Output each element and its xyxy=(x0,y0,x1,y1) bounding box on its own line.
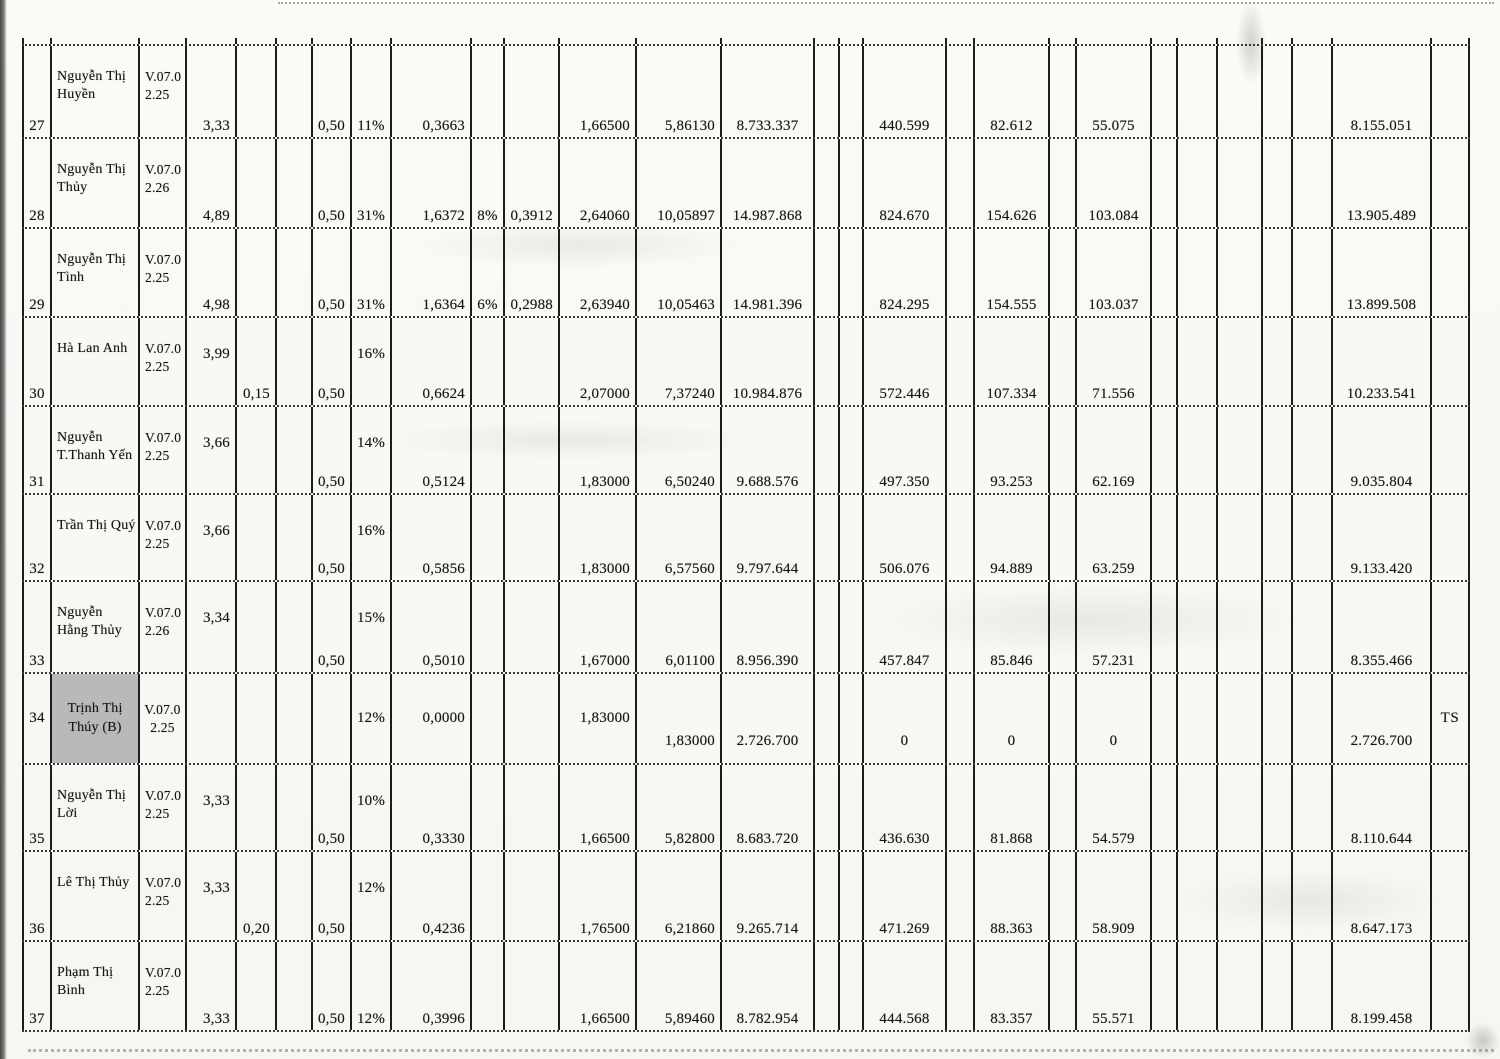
rank-code-cell-text: V.07.0 2.25 xyxy=(144,701,180,737)
empty-cell xyxy=(947,46,975,137)
empty-cell xyxy=(277,139,313,227)
deduction1-cell-text: 0 xyxy=(901,733,909,750)
base-amount-cell: 1,76500 xyxy=(560,852,637,940)
rank-code-cell: V.07.0 2.25 xyxy=(140,942,187,1030)
empty-cell xyxy=(1293,139,1333,227)
salary-coefficient-cell: 3,99 xyxy=(187,318,237,405)
grid-tick xyxy=(1050,38,1077,44)
deduction3-cell: 58.909 xyxy=(1077,852,1152,940)
total-coefficient-cell: 6,50240 xyxy=(637,407,722,493)
gross-salary-cell-text: 14.987.868 xyxy=(733,208,803,225)
salary-coefficient-cell: 3,66 xyxy=(187,407,237,493)
rank-code-cell: V.07.0 2.26 xyxy=(140,139,187,227)
amount2-cell xyxy=(505,942,560,1030)
salary-coefficient-cell: 4,89 xyxy=(187,139,237,227)
deduction2-cell-text: 107.334 xyxy=(986,386,1036,403)
grid-tick xyxy=(1263,38,1293,44)
seniority-amount-cell-text: 0,3996 xyxy=(423,1011,465,1028)
salary-coefficient-cell: 4,98 xyxy=(187,229,237,316)
grid-tick xyxy=(237,38,277,44)
gross-salary-cell: 2.726.700 xyxy=(722,674,815,763)
empty-cell xyxy=(1218,318,1263,405)
empty-cell xyxy=(815,407,840,493)
salary-coefficient-cell: 3,33 xyxy=(187,852,237,940)
empty-cell xyxy=(1293,46,1333,137)
grid-tick xyxy=(52,38,140,44)
employee-name-cell-text: Trịnh Thị Thúy (B) xyxy=(67,700,122,737)
empty-cell xyxy=(1152,582,1178,672)
base-amount-cell: 2,63940 xyxy=(560,229,637,316)
seniority-amount-cell-text: 0,5124 xyxy=(423,474,465,491)
deduction2-cell: 83.357 xyxy=(975,942,1050,1030)
gross-salary-cell: 8.782.954 xyxy=(722,942,815,1030)
empty-cell xyxy=(277,318,313,405)
seniority-percent-cell: 12% xyxy=(352,852,392,940)
net-salary-cell-text: 10.233.541 xyxy=(1347,386,1417,403)
employee-name-cell-text: Nguyễn Thị Lời xyxy=(57,787,126,824)
deduction3-cell: 63.259 xyxy=(1077,495,1152,580)
empty-cell xyxy=(1218,46,1263,137)
amount2-cell xyxy=(505,852,560,940)
empty-cell xyxy=(1050,318,1077,405)
total-coefficient-cell-text: 6,50240 xyxy=(665,474,715,491)
grid-tick xyxy=(1178,38,1218,44)
percent2-cell xyxy=(472,765,505,850)
row-number-cell-text: 34 xyxy=(29,710,44,727)
rank-code-cell-text: V.07.0 2.26 xyxy=(145,161,181,197)
percent2-cell xyxy=(472,942,505,1030)
total-coefficient-cell-text: 5,89460 xyxy=(665,1011,715,1028)
total-coefficient-cell-text: 10,05897 xyxy=(657,208,715,225)
net-salary-cell-text: 13.899.508 xyxy=(1347,297,1417,314)
empty-cell xyxy=(1178,495,1218,580)
employee-name-cell-text: Trần Thị Quý xyxy=(57,517,136,535)
percent2-cell xyxy=(472,46,505,137)
net-salary-cell-text: 8.647.173 xyxy=(1351,921,1413,938)
empty-cell xyxy=(277,674,313,763)
allowance-05-cell-text: 0,50 xyxy=(318,118,345,135)
seniority-percent-cell: 10% xyxy=(352,765,392,850)
percent2-cell xyxy=(472,318,505,405)
note-cell xyxy=(1432,407,1470,493)
gross-salary-cell-text: 9.265.714 xyxy=(737,921,799,938)
total-coefficient-cell: 5,86130 xyxy=(637,46,722,137)
empty-cell xyxy=(815,318,840,405)
allowance-extra-cell xyxy=(237,942,277,1030)
table-row: 35Nguyễn Thị LờiV.07.0 2.253,330,5010%0,… xyxy=(22,765,1470,852)
base-amount-cell: 1,67000 xyxy=(560,582,637,672)
deduction3-cell-text: 103.084 xyxy=(1088,208,1138,225)
seniority-amount-cell-text: 1,6364 xyxy=(423,297,465,314)
gross-salary-cell-text: 8.956.390 xyxy=(737,653,799,670)
empty-cell xyxy=(840,765,864,850)
empty-cell xyxy=(1178,46,1218,137)
empty-cell xyxy=(1152,942,1178,1030)
seniority-percent-cell: 15% xyxy=(352,582,392,672)
note-cell xyxy=(1432,139,1470,227)
percent2-cell xyxy=(472,674,505,763)
total-coefficient-cell: 5,82800 xyxy=(637,765,722,850)
salary-coefficient-cell: 3,33 xyxy=(187,765,237,850)
allowance-05-cell: 0,50 xyxy=(313,495,352,580)
scanned-payroll-sheet: 27Nguyễn Thị HuyềnV.07.0 2.253,330,5011%… xyxy=(0,0,1500,1059)
amount2-cell xyxy=(505,46,560,137)
total-coefficient-cell-text: 6,57560 xyxy=(665,561,715,578)
empty-cell xyxy=(947,139,975,227)
seniority-percent-cell: 11% xyxy=(352,46,392,137)
deduction1-cell-text: 471.269 xyxy=(879,921,929,938)
note-cell xyxy=(1432,46,1470,137)
rank-code-cell-text: V.07.0 2.25 xyxy=(145,787,181,823)
salary-coefficient-cell xyxy=(187,674,237,763)
seniority-percent-cell: 16% xyxy=(352,318,392,405)
total-coefficient-cell: 10,05897 xyxy=(637,139,722,227)
table-row: 31Nguyễn T.Thanh YếnV.07.0 2.253,660,501… xyxy=(22,407,1470,495)
net-salary-cell-text: 2.726.700 xyxy=(1351,733,1413,750)
allowance-05-cell: 0,50 xyxy=(313,229,352,316)
rank-code-cell: V.07.0 2.25 xyxy=(140,407,187,493)
table-row: 32Trần Thị QuýV.07.0 2.253,660,5016%0,58… xyxy=(22,495,1470,582)
deduction2-cell: 81.868 xyxy=(975,765,1050,850)
grid-tick xyxy=(1152,38,1178,44)
allowance-extra-cell: 0,15 xyxy=(237,318,277,405)
empty-cell xyxy=(947,674,975,763)
deduction2-cell-text: 81.868 xyxy=(990,831,1032,848)
allowance-05-cell: 0,50 xyxy=(313,582,352,672)
total-coefficient-cell: 6,21860 xyxy=(637,852,722,940)
empty-cell xyxy=(277,852,313,940)
empty-cell xyxy=(1218,852,1263,940)
rank-code-cell: V.07.0 2.25 xyxy=(140,318,187,405)
seniority-amount-cell: 0,4236 xyxy=(392,852,472,940)
empty-cell xyxy=(1050,852,1077,940)
gross-salary-cell-text: 2.726.700 xyxy=(737,733,799,750)
percent2-cell xyxy=(472,852,505,940)
empty-cell xyxy=(1218,407,1263,493)
salary-coefficient-cell-text: 3,33 xyxy=(203,793,230,810)
net-salary-cell-text: 9.035.804 xyxy=(1351,474,1413,491)
grid-tick xyxy=(840,38,864,44)
amount2-cell-text: 0,3912 xyxy=(511,208,553,225)
seniority-percent-cell: 12% xyxy=(352,674,392,763)
salary-coefficient-cell-text: 3,99 xyxy=(203,346,230,363)
seniority-percent-cell-text: 16% xyxy=(357,346,385,363)
percent2-cell xyxy=(472,582,505,672)
table-top-border-ticks xyxy=(22,38,1470,46)
total-coefficient-cell-text: 5,86130 xyxy=(665,118,715,135)
empty-cell xyxy=(1263,407,1293,493)
seniority-percent-cell: 31% xyxy=(352,139,392,227)
total-coefficient-cell: 5,89460 xyxy=(637,942,722,1030)
deduction1-cell: 572.446 xyxy=(864,318,947,405)
gross-salary-cell: 14.981.396 xyxy=(722,229,815,316)
empty-cell xyxy=(947,318,975,405)
allowance-05-cell-text: 0,50 xyxy=(318,386,345,403)
deduction2-cell-text: 83.357 xyxy=(990,1011,1032,1028)
allowance-extra-cell xyxy=(237,139,277,227)
deduction1-cell-text: 506.076 xyxy=(879,561,929,578)
salary-coefficient-cell: 3,66 xyxy=(187,495,237,580)
empty-cell xyxy=(947,942,975,1030)
allowance-extra-cell xyxy=(237,674,277,763)
empty-cell xyxy=(1293,407,1333,493)
empty-cell xyxy=(1152,407,1178,493)
employee-name-cell-text: Nguyễn Thị Huyền xyxy=(57,68,126,105)
rank-code-cell-text: V.07.0 2.25 xyxy=(145,517,181,553)
allowance-extra-cell-text: 0,15 xyxy=(243,386,270,403)
table-row: 34Trịnh Thị Thúy (B)V.07.0 2.2512%0,0000… xyxy=(22,674,1470,765)
rank-code-cell-text: V.07.0 2.25 xyxy=(145,429,181,465)
amount2-cell xyxy=(505,495,560,580)
row-number-cell-text: 30 xyxy=(29,386,44,403)
allowance-05-cell: 0,50 xyxy=(313,852,352,940)
deduction3-cell: 71.556 xyxy=(1077,318,1152,405)
rank-code-cell: V.07.0 2.25 xyxy=(140,46,187,137)
deduction2-cell-text: 0 xyxy=(1008,733,1016,750)
allowance-05-cell: 0,50 xyxy=(313,139,352,227)
empty-cell xyxy=(840,852,864,940)
gross-salary-cell-text: 8.683.720 xyxy=(737,831,799,848)
employee-name-cell: Nguyễn T.Thanh Yến xyxy=(52,407,140,493)
total-coefficient-cell: 6,01100 xyxy=(637,582,722,672)
empty-cell xyxy=(1152,495,1178,580)
empty-cell xyxy=(1293,852,1333,940)
salary-coefficient-cell-text: 3,66 xyxy=(203,523,230,540)
scan-top-row-remnant-line xyxy=(278,2,1494,4)
empty-cell xyxy=(815,495,840,580)
seniority-amount-cell: 1,6364 xyxy=(392,229,472,316)
row-number-cell-text: 28 xyxy=(29,208,44,225)
deduction1-cell: 0 xyxy=(864,674,947,763)
deduction2-cell-text: 94.889 xyxy=(990,561,1032,578)
table-row: 30Hà Lan AnhV.07.0 2.253,990,150,5016%0,… xyxy=(22,318,1470,407)
grid-tick xyxy=(947,38,975,44)
payroll-table: 27Nguyễn Thị HuyềnV.07.0 2.253,330,5011%… xyxy=(22,38,1470,1032)
deduction2-cell: 154.555 xyxy=(975,229,1050,316)
seniority-amount-cell: 0,5124 xyxy=(392,407,472,493)
total-coefficient-cell: 7,37240 xyxy=(637,318,722,405)
salary-coefficient-cell-text: 3,34 xyxy=(203,610,230,627)
table-row: 36Lê Thị ThủyV.07.0 2.253,330,200,5012%0… xyxy=(22,852,1470,942)
deduction1-cell-text: 824.670 xyxy=(879,208,929,225)
salary-coefficient-cell-text: 4,98 xyxy=(203,297,230,314)
empty-cell xyxy=(815,942,840,1030)
empty-cell xyxy=(1178,942,1218,1030)
rank-code-cell-text: V.07.0 2.25 xyxy=(145,964,181,1000)
net-salary-cell: 10.233.541 xyxy=(1333,318,1432,405)
employee-name-cell-text: Phạm Thị Bình xyxy=(57,964,113,1001)
empty-cell xyxy=(1263,229,1293,316)
empty-cell xyxy=(815,852,840,940)
employee-name-cell: Trần Thị Quý xyxy=(52,495,140,580)
empty-cell xyxy=(1050,229,1077,316)
allowance-05-cell: 0,50 xyxy=(313,318,352,405)
base-amount-cell: 1,66500 xyxy=(560,46,637,137)
row-number-cell-text: 37 xyxy=(29,1011,44,1028)
seniority-percent-cell-text: 31% xyxy=(357,208,385,225)
empty-cell xyxy=(1293,318,1333,405)
allowance-05-cell-text: 0,50 xyxy=(318,297,345,314)
empty-cell xyxy=(1218,942,1263,1030)
net-salary-cell: 8.355.466 xyxy=(1333,582,1432,672)
grid-tick xyxy=(560,38,637,44)
deduction3-cell: 54.579 xyxy=(1077,765,1152,850)
base-amount-cell: 1,66500 xyxy=(560,765,637,850)
deduction2-cell-text: 85.846 xyxy=(990,653,1032,670)
deduction1-cell: 824.295 xyxy=(864,229,947,316)
total-coefficient-cell-text: 1,83000 xyxy=(665,733,715,750)
allowance-05-cell: 0,50 xyxy=(313,765,352,850)
deduction1-cell-text: 824.295 xyxy=(879,297,929,314)
net-salary-cell-text: 8.355.466 xyxy=(1351,653,1413,670)
empty-cell xyxy=(947,229,975,316)
percent2-cell-text: 6% xyxy=(477,297,497,314)
total-coefficient-cell: 1,83000 xyxy=(637,674,722,763)
deduction3-cell: 57.231 xyxy=(1077,582,1152,672)
deduction1-cell-text: 444.568 xyxy=(879,1011,929,1028)
net-salary-cell-text: 13.905.489 xyxy=(1347,208,1417,225)
amount2-cell-text: 0,2988 xyxy=(511,297,553,314)
deduction3-cell: 55.571 xyxy=(1077,942,1152,1030)
note-cell xyxy=(1432,765,1470,850)
net-salary-cell-text: 8.155.051 xyxy=(1351,118,1413,135)
gross-salary-cell: 10.984.876 xyxy=(722,318,815,405)
seniority-amount-cell-text: 0,3330 xyxy=(423,831,465,848)
grid-tick xyxy=(975,38,1050,44)
empty-cell xyxy=(840,46,864,137)
deduction1-cell: 497.350 xyxy=(864,407,947,493)
row-number-cell: 32 xyxy=(22,495,52,580)
empty-cell xyxy=(277,46,313,137)
empty-cell xyxy=(1263,139,1293,227)
grid-tick xyxy=(392,38,472,44)
seniority-percent-cell-text: 12% xyxy=(357,1011,385,1028)
gross-salary-cell: 14.987.868 xyxy=(722,139,815,227)
allowance-extra-cell xyxy=(237,582,277,672)
empty-cell xyxy=(1178,318,1218,405)
base-amount-cell: 1,83000 xyxy=(560,407,637,493)
scan-bottom-edge-line xyxy=(28,1049,1494,1052)
empty-cell xyxy=(277,407,313,493)
deduction1-cell: 440.599 xyxy=(864,46,947,137)
base-amount-cell-text: 1,83000 xyxy=(580,474,630,491)
amount2-cell xyxy=(505,582,560,672)
empty-cell xyxy=(1050,46,1077,137)
deduction2-cell-text: 154.555 xyxy=(986,297,1036,314)
empty-cell xyxy=(1293,765,1333,850)
seniority-amount-cell: 0,3996 xyxy=(392,942,472,1030)
allowance-extra-cell xyxy=(237,495,277,580)
grid-tick xyxy=(1218,38,1263,44)
allowance-05-cell: 0,50 xyxy=(313,942,352,1030)
amount2-cell xyxy=(505,407,560,493)
deduction3-cell: 103.037 xyxy=(1077,229,1152,316)
seniority-amount-cell: 0,6624 xyxy=(392,318,472,405)
deduction2-cell: 82.612 xyxy=(975,46,1050,137)
seniority-percent-cell-text: 12% xyxy=(357,710,385,727)
empty-cell xyxy=(277,229,313,316)
allowance-05-cell-text: 0,50 xyxy=(318,208,345,225)
amount2-cell: 0,2988 xyxy=(505,229,560,316)
deduction3-cell-text: 62.169 xyxy=(1092,474,1134,491)
empty-cell xyxy=(1178,765,1218,850)
employee-name-cell: Nguyễn Thị Tình xyxy=(52,229,140,316)
total-coefficient-cell: 6,57560 xyxy=(637,495,722,580)
gross-salary-cell: 8.733.337 xyxy=(722,46,815,137)
deduction1-cell-text: 572.446 xyxy=(879,386,929,403)
empty-cell xyxy=(840,229,864,316)
allowance-extra-cell: 0,20 xyxy=(237,852,277,940)
employee-name-cell-text: Hà Lan Anh xyxy=(57,340,127,358)
salary-coefficient-cell: 3,34 xyxy=(187,582,237,672)
seniority-percent-cell: 16% xyxy=(352,495,392,580)
employee-name-cell: Nguyễn Thị Huyền xyxy=(52,46,140,137)
empty-cell xyxy=(1263,582,1293,672)
empty-cell xyxy=(1178,674,1218,763)
total-coefficient-cell-text: 6,01100 xyxy=(665,653,715,670)
empty-cell xyxy=(840,318,864,405)
empty-cell xyxy=(840,582,864,672)
total-coefficient-cell-text: 6,21860 xyxy=(665,921,715,938)
note-cell xyxy=(1432,852,1470,940)
empty-cell xyxy=(1263,942,1293,1030)
empty-cell xyxy=(1293,229,1333,316)
base-amount-cell-text: 1,76500 xyxy=(580,921,630,938)
empty-cell xyxy=(1218,495,1263,580)
base-amount-cell: 2,07000 xyxy=(560,318,637,405)
salary-coefficient-cell-text: 4,89 xyxy=(203,208,230,225)
seniority-percent-cell-text: 31% xyxy=(357,297,385,314)
grid-tick xyxy=(1432,38,1470,44)
empty-cell xyxy=(1263,765,1293,850)
deduction2-cell: 94.889 xyxy=(975,495,1050,580)
gross-salary-cell-text: 9.688.576 xyxy=(737,474,799,491)
empty-cell xyxy=(1263,46,1293,137)
deduction3-cell: 103.084 xyxy=(1077,139,1152,227)
base-amount-cell-text: 1,66500 xyxy=(580,831,630,848)
table-row: 37Phạm Thị BìnhV.07.0 2.253,330,5012%0,3… xyxy=(22,942,1470,1032)
deduction2-cell: 107.334 xyxy=(975,318,1050,405)
row-number-cell-text: 27 xyxy=(29,118,44,135)
amount2-cell: 0,3912 xyxy=(505,139,560,227)
row-number-cell: 28 xyxy=(22,139,52,227)
deduction1-cell: 824.670 xyxy=(864,139,947,227)
row-number-cell: 34 xyxy=(22,674,52,763)
seniority-percent-cell-text: 10% xyxy=(357,793,385,810)
empty-cell xyxy=(1050,139,1077,227)
amount2-cell xyxy=(505,765,560,850)
row-number-cell: 37 xyxy=(22,942,52,1030)
allowance-extra-cell-text: 0,20 xyxy=(243,921,270,938)
grid-tick xyxy=(1333,38,1432,44)
seniority-percent-cell-text: 11% xyxy=(357,118,385,135)
employee-name-cell: Nguyễn Hằng Thủy xyxy=(52,582,140,672)
rank-code-cell: V.07.0 2.25 xyxy=(140,495,187,580)
grid-tick xyxy=(277,38,313,44)
deduction3-cell-text: 57.231 xyxy=(1092,653,1134,670)
note-cell xyxy=(1432,495,1470,580)
base-amount-cell-text: 2,64060 xyxy=(580,208,630,225)
empty-cell xyxy=(1050,407,1077,493)
base-amount-cell-text: 2,63940 xyxy=(580,297,630,314)
empty-cell xyxy=(840,674,864,763)
allowance-05-cell-text: 0,50 xyxy=(318,1011,345,1028)
percent2-cell: 8% xyxy=(472,139,505,227)
grid-tick xyxy=(1077,38,1152,44)
gross-salary-cell-text: 8.782.954 xyxy=(737,1011,799,1028)
empty-cell xyxy=(815,582,840,672)
empty-cell xyxy=(815,765,840,850)
